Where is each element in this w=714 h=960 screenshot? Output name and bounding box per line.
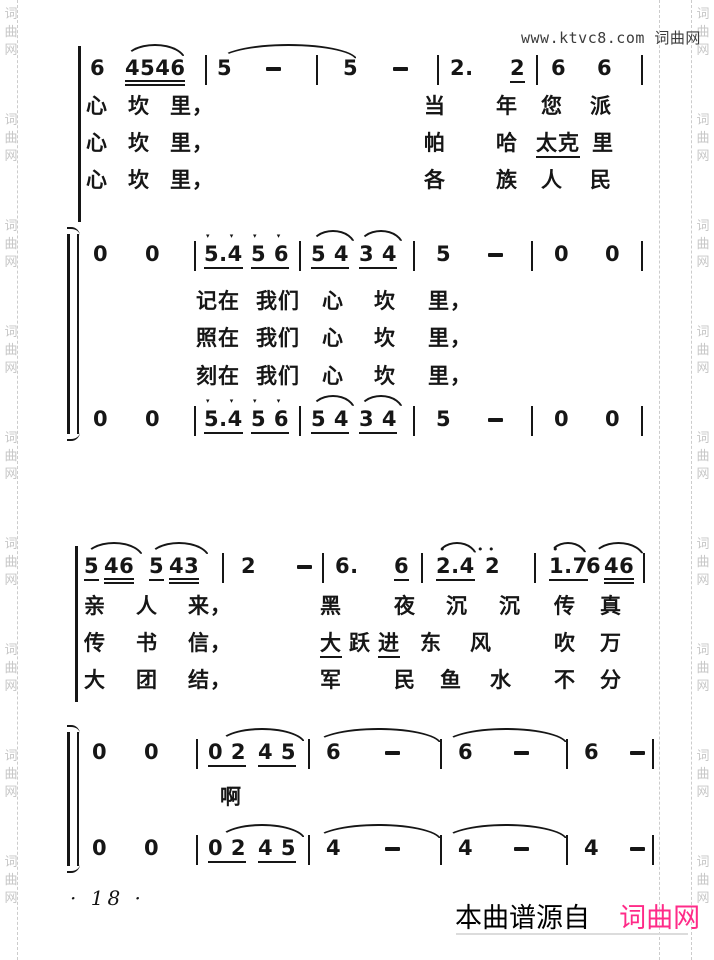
note: 4 — [458, 838, 473, 859]
lyric-syllable: 军 — [320, 670, 342, 691]
lyric-syllable: 水 — [490, 670, 512, 691]
note: 5 — [436, 409, 451, 430]
note: 0 — [605, 409, 620, 430]
note: 43 — [169, 556, 199, 584]
system-bracket — [67, 732, 79, 866]
dash-note — [630, 847, 645, 851]
lyric-syllable: 坎 — [374, 291, 396, 312]
slur-tie-arc — [358, 230, 404, 247]
note-articulation-mark: • — [488, 544, 509, 555]
note: 5.4▾ ▾ — [204, 409, 243, 434]
barline — [308, 739, 310, 769]
dash-note — [514, 847, 529, 851]
source-credit-prefix: 本曲谱源自 — [455, 903, 590, 934]
note: 2 — [510, 58, 525, 83]
note-articulation-mark: ▾ ▾ — [206, 398, 242, 405]
lyric-syllable: 族 — [496, 170, 518, 191]
barline — [641, 406, 643, 436]
lyric-syllable: 啊 — [220, 787, 242, 808]
note: 0 — [93, 409, 108, 430]
note: 0 — [554, 409, 569, 430]
note: 0 — [144, 742, 159, 763]
source-credit: 本曲谱源自 词曲网 — [455, 896, 700, 935]
slur-tie-arc — [218, 824, 306, 841]
lyric-syllable: 里， — [170, 170, 214, 191]
note: 5 — [436, 244, 451, 265]
note: 46 — [604, 556, 634, 584]
slur-tie-arc — [315, 824, 442, 841]
barline — [413, 241, 415, 271]
dash-note — [266, 67, 281, 71]
lyric-syllable: 里， — [428, 366, 472, 387]
lyric-syllable: 夜 — [394, 596, 416, 617]
lyric-syllable: 沉 — [499, 596, 521, 617]
note: 0 — [92, 742, 107, 763]
note: 5 — [149, 556, 164, 581]
lyric-syllable: 里， — [170, 133, 214, 154]
lyric-syllable: 太克 — [536, 133, 580, 158]
slur-tie-arc — [124, 44, 186, 61]
note: 0 2 — [208, 838, 246, 863]
note: 5 4 — [311, 409, 349, 434]
lyric-syllable: 团 — [136, 670, 158, 691]
lyric-syllable: 风 — [470, 633, 492, 654]
slur-tie-arc — [219, 44, 358, 61]
note: 6 — [551, 58, 566, 79]
note: 6 — [326, 742, 341, 763]
barline — [322, 553, 324, 583]
barline — [205, 55, 207, 85]
lyric-syllable: 我们 — [256, 291, 300, 312]
sheet-music-page: 词曲网词曲网词曲网词曲网词曲网词曲网词曲网词曲网词曲网 词曲网词曲网词曲网词曲网… — [0, 0, 714, 960]
slur-tie-arc — [444, 824, 568, 841]
note: 6 — [597, 58, 612, 79]
note: 0 — [144, 838, 159, 859]
slur-tie-arc — [310, 230, 356, 247]
note: 2.4• • — [436, 556, 475, 581]
barline — [196, 835, 198, 865]
note-articulation-mark: ▾ ▾ — [253, 398, 289, 405]
lyric-syllable: 坎 — [374, 366, 396, 387]
barline — [222, 553, 224, 583]
slur-tie-arc — [358, 395, 404, 412]
lyric-syllable: 沉 — [446, 596, 468, 617]
note: 46 — [104, 556, 134, 584]
lyric-syllable: 人 — [541, 170, 563, 191]
lyric-syllable: 坎 — [374, 328, 396, 349]
dash-note — [514, 751, 529, 755]
lyric-syllable: 民 — [590, 170, 612, 191]
barline — [437, 55, 439, 85]
lyric-syllable: 鱼 — [440, 670, 462, 691]
lyric-syllable: 哈 — [496, 133, 518, 154]
note: 5 — [343, 58, 358, 79]
lyric-syllable: 万 — [600, 633, 622, 654]
barline — [652, 835, 654, 865]
note-articulation-mark: ▾ ▾ — [253, 233, 289, 240]
lyric-syllable: 跃 — [349, 633, 371, 654]
note: 6 — [458, 742, 473, 763]
note: 6 — [584, 742, 599, 763]
note: 5 6▾ ▾ — [251, 409, 289, 434]
lyric-syllable: 里， — [428, 328, 472, 349]
lyric-syllable: 心 — [86, 170, 108, 191]
note: 2. — [450, 58, 474, 79]
lyric-syllable: 记在 — [196, 291, 240, 312]
note: 0 — [605, 244, 620, 265]
note: 0 — [554, 244, 569, 265]
lyric-syllable: 心 — [86, 96, 108, 117]
note: 6 — [90, 58, 105, 79]
dash-note — [297, 565, 312, 569]
lyric-syllable: 我们 — [256, 366, 300, 387]
lyric-syllable: 心 — [322, 366, 344, 387]
lyric-syllable: 大 — [84, 670, 106, 691]
note: 4546 — [125, 58, 185, 86]
note: 2 — [241, 556, 256, 577]
note: 6. — [335, 556, 359, 577]
lyric-syllable: 坎 — [128, 133, 150, 154]
lyric-syllable: 传 — [554, 596, 576, 617]
lyric-syllable: 分 — [600, 670, 622, 691]
note: 5 6▾ ▾ — [251, 244, 289, 269]
lyric-syllable: 坎 — [128, 96, 150, 117]
lyric-syllable: 亲 — [84, 596, 106, 617]
lyric-syllable: 东 — [420, 633, 442, 654]
dash-note — [393, 67, 408, 71]
lyric-syllable: 心 — [322, 291, 344, 312]
note: 4 — [584, 838, 599, 859]
note: 5.4▾ ▾ — [204, 244, 243, 269]
lyric-syllable: 各 — [424, 170, 446, 191]
score: 64546552.266心坎里，当年您派心坎里，帕哈太克里心坎里，各族人民005… — [0, 0, 714, 960]
dash-note — [488, 418, 503, 422]
lyric-syllable: 刻在 — [196, 366, 240, 387]
barline — [536, 55, 538, 85]
lyric-syllable: 您 — [541, 96, 563, 117]
lyric-syllable: 结， — [188, 670, 232, 691]
barline — [194, 241, 196, 271]
site-url-watermark: www.ktvc8.com 词曲网 — [521, 27, 701, 48]
lyric-syllable: 黑 — [320, 596, 342, 617]
lyric-syllable: 民 — [394, 670, 416, 691]
slur-tie-arc — [444, 728, 568, 745]
lyric-syllable: 我们 — [256, 328, 300, 349]
slur-tie-arc — [218, 728, 306, 745]
barline — [534, 553, 536, 583]
barline — [421, 553, 423, 583]
lyric-syllable: 信， — [188, 633, 232, 654]
barline — [652, 739, 654, 769]
lyric-syllable: 真 — [600, 596, 622, 617]
lyric-syllable: 帕 — [424, 133, 446, 154]
lyric-syllable: 不 — [554, 670, 576, 691]
dash-note — [630, 751, 645, 755]
lyric-syllable: 心 — [86, 133, 108, 154]
note: 0 2 — [208, 742, 246, 767]
barline — [196, 739, 198, 769]
barline — [641, 241, 643, 271]
lyric-syllable: 坎 — [128, 170, 150, 191]
note: 4 — [326, 838, 341, 859]
lyric-syllable: 来， — [188, 596, 232, 617]
source-site-link[interactable]: 词曲网 — [619, 903, 700, 934]
barline — [299, 241, 301, 271]
note: 1.7• — [549, 556, 588, 581]
note: 0 — [145, 244, 160, 265]
lyric-syllable: 心 — [322, 328, 344, 349]
system-barline — [78, 46, 81, 222]
barline — [531, 241, 533, 271]
lyric-syllable: 人 — [136, 596, 158, 617]
dash-note — [385, 847, 400, 851]
note: 6 — [586, 556, 601, 577]
slur-tie-arc — [84, 542, 144, 559]
lyric-syllable: 里 — [592, 133, 614, 154]
slur-tie-arc — [315, 728, 442, 745]
note: 0 — [145, 409, 160, 430]
dash-note — [385, 751, 400, 755]
lyric-syllable: 进 — [378, 633, 400, 658]
lyric-syllable: 当 — [424, 96, 446, 117]
note: 3 4 — [359, 244, 397, 269]
note: 2• — [485, 556, 500, 577]
lyric-syllable: 里， — [170, 96, 214, 117]
barline — [194, 406, 196, 436]
lyric-syllable: 大 — [320, 633, 342, 658]
note: 5 4 — [311, 244, 349, 269]
lyric-syllable: 照在 — [196, 328, 240, 349]
lyric-syllable: 传 — [84, 633, 106, 654]
slur-tie-arc — [148, 542, 210, 559]
barline — [413, 406, 415, 436]
slur-tie-arc — [592, 542, 645, 559]
system-bracket — [67, 234, 79, 434]
note: 4 5 — [258, 742, 296, 767]
barline — [299, 406, 301, 436]
lyric-syllable: 书 — [136, 633, 158, 654]
lyric-syllable: 里， — [428, 291, 472, 312]
note: 5 — [217, 58, 232, 79]
slur-tie-arc — [310, 395, 356, 412]
note: 4 5 — [258, 838, 296, 863]
lyric-syllable: 年 — [496, 96, 518, 117]
barline — [641, 55, 643, 85]
note-articulation-mark: ▾ ▾ — [206, 233, 242, 240]
barline — [308, 835, 310, 865]
note: 0 — [92, 838, 107, 859]
note: 6 — [394, 556, 409, 581]
lyric-syllable: 派 — [590, 96, 612, 117]
note: 3 4 — [359, 409, 397, 434]
note: 0 — [93, 244, 108, 265]
lyric-syllable: 吹 — [554, 633, 576, 654]
system-barline — [75, 546, 78, 702]
note: 5 — [84, 556, 99, 581]
barline — [531, 406, 533, 436]
dash-note — [488, 253, 503, 257]
